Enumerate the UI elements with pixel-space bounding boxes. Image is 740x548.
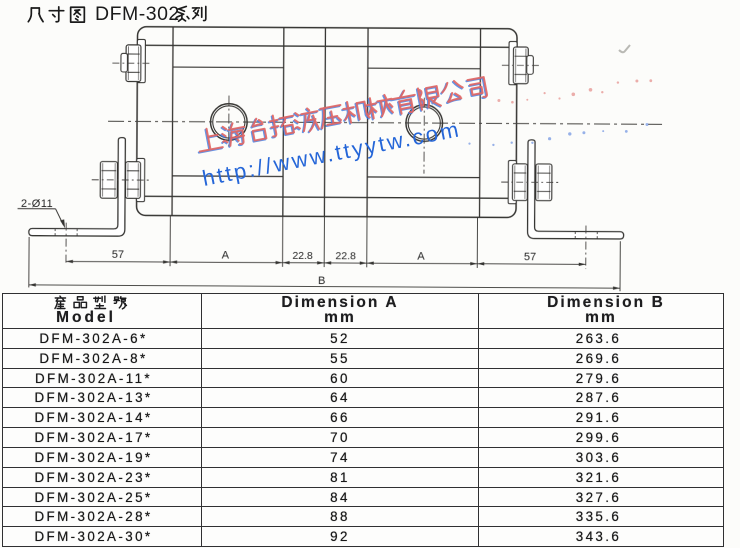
svg-text:57: 57 <box>524 251 536 263</box>
svg-text:22.8: 22.8 <box>335 250 356 262</box>
svg-text:B: B <box>318 275 325 287</box>
svg-text:57: 57 <box>112 249 124 261</box>
svg-text:22.8: 22.8 <box>292 250 313 262</box>
svg-text:A: A <box>417 250 425 262</box>
svg-text:A: A <box>222 249 230 261</box>
